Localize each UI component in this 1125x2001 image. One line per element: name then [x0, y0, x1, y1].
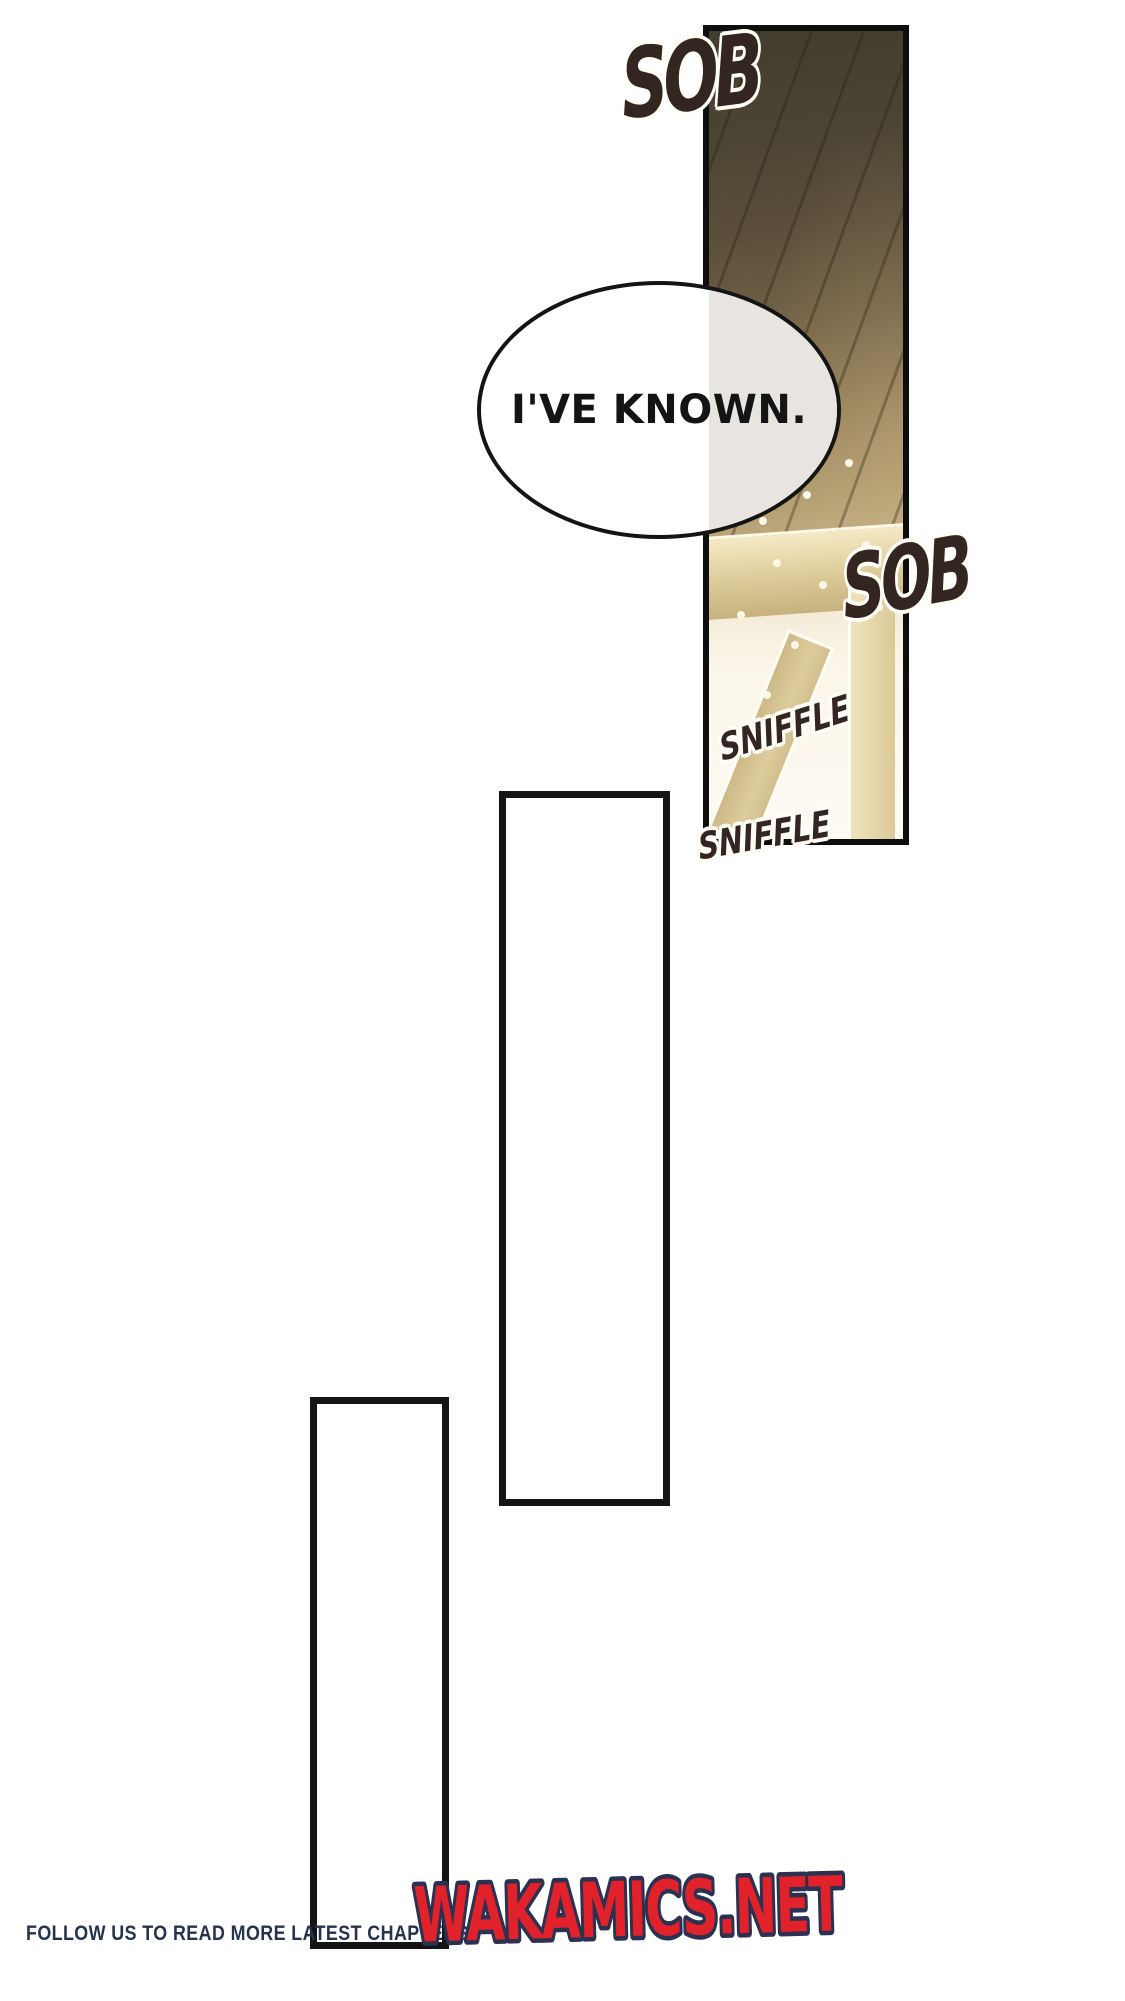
comic-page: { "page": { "background_color": "#ffffff… [0, 0, 1125, 2001]
sfx-sob-top: SOB [618, 12, 762, 141]
sfx-sob-middle: SOB [838, 515, 973, 640]
speech-bubble-text: I'VE KNOWN. [481, 285, 837, 535]
site-logo-text: WAKAMICS.NET [413, 1859, 845, 1959]
site-logo: WAKAMICS.NET [408, 1856, 868, 1960]
speech-bubble: I'VE KNOWN. [477, 281, 841, 539]
empty-panel-1 [499, 791, 670, 1506]
footer-tagline: FOLLOW US TO READ MORE LATEST CHAPTERS [26, 1922, 469, 1946]
